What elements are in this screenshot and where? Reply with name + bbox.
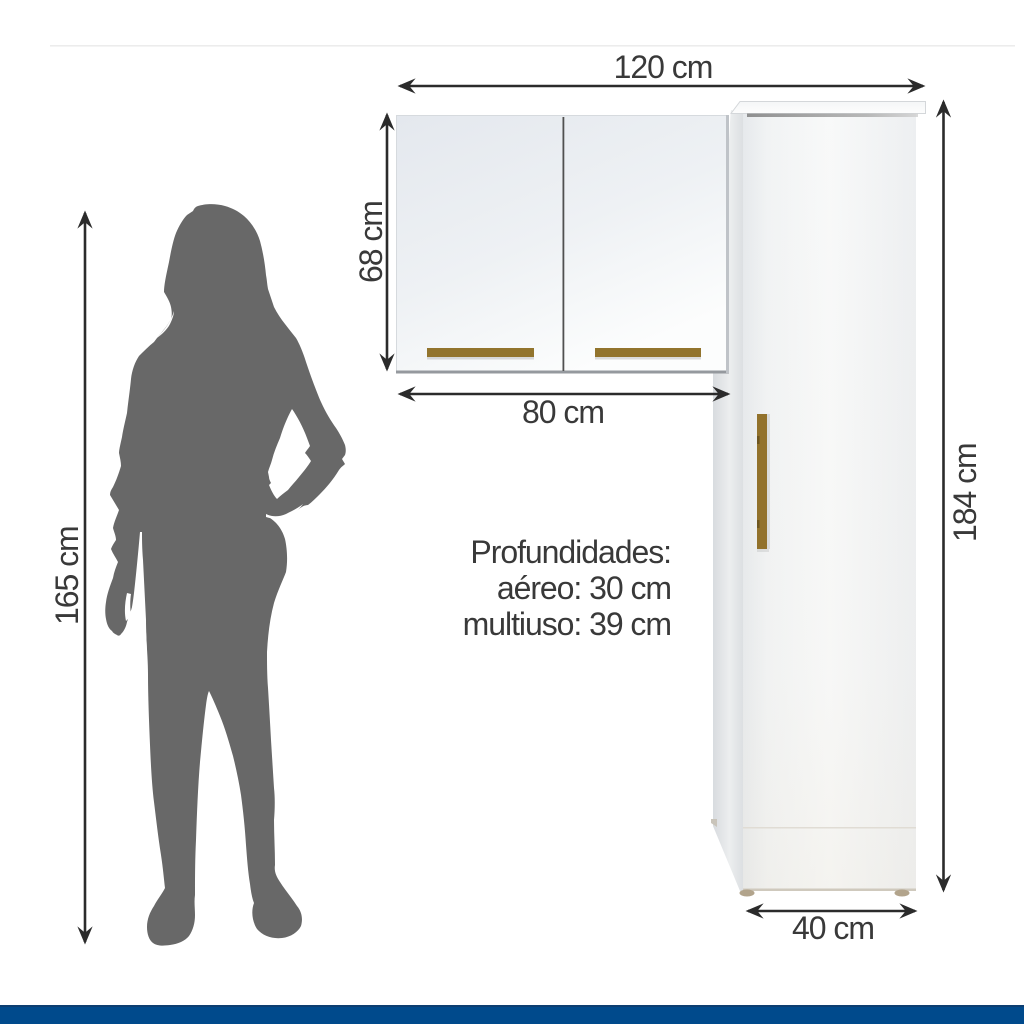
svg-text:multiuso: 39 cm: multiuso: 39 cm: [463, 606, 671, 642]
svg-text:80 cm: 80 cm: [522, 394, 604, 430]
svg-text:Profundidades:: Profundidades:: [470, 534, 671, 570]
svg-text:aéreo: 30 cm: aéreo: 30 cm: [497, 570, 671, 606]
svg-text:120 cm: 120 cm: [614, 49, 713, 85]
svg-text:40 cm: 40 cm: [792, 910, 874, 946]
svg-text:184 cm: 184 cm: [947, 443, 983, 542]
svg-text:165 cm: 165 cm: [49, 526, 85, 625]
svg-text:68 cm: 68 cm: [353, 201, 389, 283]
